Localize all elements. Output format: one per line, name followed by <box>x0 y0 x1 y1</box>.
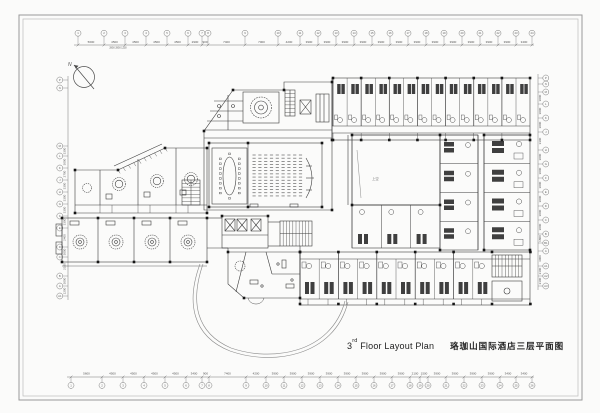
svg-text:B1: B1 <box>544 241 548 245</box>
svg-text:24: 24 <box>498 383 502 387</box>
svg-text:3900: 3900 <box>432 40 439 44</box>
svg-text:1500: 1500 <box>421 372 428 376</box>
svg-text:3300: 3300 <box>63 182 67 189</box>
svg-text:2400: 2400 <box>63 234 67 241</box>
svg-text:3900: 3900 <box>450 40 457 44</box>
svg-text:3900: 3900 <box>414 40 421 44</box>
svg-text:M: M <box>545 90 548 94</box>
svg-text:P: P <box>59 78 61 82</box>
svg-text:16: 16 <box>372 383 376 387</box>
svg-text:3900: 3900 <box>344 372 351 376</box>
atrium-void: 上空 <box>348 135 440 205</box>
svg-text:3300: 3300 <box>63 194 67 201</box>
svg-text:18: 18 <box>408 383 412 387</box>
svg-text:3900: 3900 <box>486 40 493 44</box>
svg-text:3300: 3300 <box>63 206 67 213</box>
svg-text:3000: 3000 <box>538 94 542 101</box>
svg-text:4: 4 <box>145 31 147 35</box>
svg-text:3000: 3000 <box>538 153 542 160</box>
svg-text:3000: 3000 <box>538 121 542 128</box>
generated-fixtures <box>61 77 532 306</box>
conference-block <box>204 82 332 210</box>
svg-text:5: 5 <box>164 383 166 387</box>
svg-text:8: 8 <box>207 31 209 35</box>
svg-text:22: 22 <box>496 31 500 35</box>
svg-text:4500: 4500 <box>153 40 160 44</box>
svg-text:3900: 3900 <box>468 40 475 44</box>
svg-text:2: 2 <box>103 31 105 35</box>
svg-text:3900: 3900 <box>342 40 349 44</box>
svg-text:A1: A1 <box>544 264 548 268</box>
svg-text:G: G <box>59 202 61 206</box>
atrium-label: 上空 <box>372 176 379 181</box>
svg-text:P: P <box>545 76 547 80</box>
svg-text:1: 1 <box>77 31 79 35</box>
svg-text:A3: A3 <box>544 284 548 288</box>
svg-text:A1: A1 <box>58 294 62 298</box>
svg-text:2850 2850 1250: 2850 2850 1250 <box>109 47 127 50</box>
svg-text:3300: 3300 <box>63 218 67 225</box>
svg-text:L: L <box>545 102 547 106</box>
svg-text:N: N <box>68 62 72 68</box>
svg-text:7: 7 <box>201 31 203 35</box>
svg-text:10: 10 <box>264 383 268 387</box>
svg-text:7000: 7000 <box>258 40 265 44</box>
svg-text:3400: 3400 <box>505 372 512 376</box>
svg-text:25: 25 <box>514 383 518 387</box>
svg-text:3000: 3000 <box>538 255 542 262</box>
svg-text:K: K <box>59 166 61 170</box>
svg-text:3: 3 <box>124 31 126 35</box>
svg-text:3900: 3900 <box>308 372 315 376</box>
svg-text:19: 19 <box>442 31 446 35</box>
title-block: 3rd Floor Layout Plan 珞珈山国际酒店三层平面图 <box>347 340 564 352</box>
svg-text:3000: 3000 <box>538 107 542 114</box>
svg-text:E: E <box>59 226 61 230</box>
svg-text:5600: 5600 <box>88 40 95 44</box>
title-english: 3rd Floor Layout Plan <box>347 341 434 351</box>
svg-text:19: 19 <box>418 383 422 387</box>
svg-text:24: 24 <box>530 31 534 35</box>
svg-text:H: H <box>545 148 547 152</box>
svg-text:3900: 3900 <box>290 372 297 376</box>
guest-wing-top <box>332 78 530 140</box>
north-arrow-icon: N <box>68 62 95 89</box>
svg-text:26: 26 <box>530 383 534 387</box>
svg-text:3900: 3900 <box>398 372 405 376</box>
svg-text:C: C <box>545 218 547 222</box>
svg-text:4200: 4200 <box>286 40 293 44</box>
svg-text:K: K <box>545 116 547 120</box>
svg-text:3300: 3300 <box>538 137 542 144</box>
svg-text:17: 17 <box>390 383 394 387</box>
svg-text:M: M <box>59 144 62 148</box>
building: 上空 <box>56 78 530 357</box>
driveway-arc <box>193 264 348 357</box>
svg-text:G: G <box>545 162 547 166</box>
svg-text:2: 2 <box>101 383 103 387</box>
svg-text:A2: A2 <box>544 274 548 278</box>
svg-text:H: H <box>59 190 61 194</box>
svg-text:A: A <box>545 249 547 253</box>
svg-text:3900: 3900 <box>272 372 279 376</box>
svg-text:3000: 3000 <box>63 158 67 165</box>
svg-text:21: 21 <box>478 31 482 35</box>
svg-text:3900: 3900 <box>360 40 367 44</box>
svg-text:17: 17 <box>406 31 410 35</box>
svg-text:6: 6 <box>187 31 189 35</box>
svg-text:5: 5 <box>166 31 168 35</box>
svg-text:4500: 4500 <box>174 40 181 44</box>
svg-text:3000: 3000 <box>538 209 542 216</box>
svg-text:3900: 3900 <box>488 372 495 376</box>
svg-text:900: 900 <box>203 372 208 376</box>
svg-text:2100: 2100 <box>412 372 419 376</box>
svg-text:7400: 7400 <box>224 372 231 376</box>
svg-text:3900: 3900 <box>378 40 385 44</box>
svg-text:L: L <box>59 154 61 158</box>
svg-text:7400: 7400 <box>223 40 230 44</box>
svg-text:3900: 3900 <box>504 40 511 44</box>
elevator-core <box>207 216 312 252</box>
svg-text:9: 9 <box>244 31 246 35</box>
svg-text:3000: 3000 <box>538 181 542 188</box>
svg-text:F: F <box>59 214 61 218</box>
svg-text:A: A <box>59 284 61 288</box>
svg-text:16: 16 <box>388 31 392 35</box>
svg-text:3900: 3900 <box>362 372 369 376</box>
svg-text:B: B <box>545 232 547 236</box>
svg-text:3400: 3400 <box>191 372 198 376</box>
svg-text:2100: 2100 <box>63 263 67 270</box>
svg-text:3900: 3900 <box>324 40 331 44</box>
svg-text:B: B <box>59 274 61 278</box>
svg-text:4500: 4500 <box>109 372 116 376</box>
svg-text:15: 15 <box>354 383 358 387</box>
svg-text:3000: 3000 <box>538 167 542 174</box>
svg-text:J: J <box>59 178 61 182</box>
svg-text:11: 11 <box>299 31 302 35</box>
svg-text:3000: 3000 <box>63 277 67 284</box>
drawing-sheet: 1560024500345004450054500629007900874009… <box>0 0 600 413</box>
svg-text:10: 10 <box>276 31 280 35</box>
svg-text:20: 20 <box>426 383 430 387</box>
svg-text:3300: 3300 <box>63 147 67 154</box>
svg-text:N: N <box>545 82 547 86</box>
svg-text:4: 4 <box>143 383 145 387</box>
svg-text:3000: 3000 <box>63 248 67 255</box>
svg-text:3900: 3900 <box>306 40 313 44</box>
svg-text:3000: 3000 <box>538 195 542 202</box>
svg-text:2700: 2700 <box>63 170 67 177</box>
svg-text:4200: 4200 <box>253 372 260 376</box>
svg-text:F: F <box>545 176 547 180</box>
conference-hall <box>209 143 322 207</box>
svg-text:22: 22 <box>462 383 466 387</box>
svg-text:E: E <box>545 190 547 194</box>
svg-text:4500: 4500 <box>172 372 179 376</box>
svg-text:D: D <box>545 204 547 208</box>
svg-text:21: 21 <box>444 383 448 387</box>
svg-text:900: 900 <box>202 40 207 44</box>
svg-text:4500: 4500 <box>111 40 118 44</box>
svg-text:8: 8 <box>208 383 210 387</box>
svg-text:23: 23 <box>480 383 484 387</box>
svg-text:2100: 2100 <box>538 267 542 274</box>
svg-text:N: N <box>59 86 61 90</box>
svg-text:3400: 3400 <box>521 372 528 376</box>
svg-text:3900: 3900 <box>434 372 441 376</box>
svg-text:4500: 4500 <box>132 40 139 44</box>
svg-text:13: 13 <box>318 383 322 387</box>
svg-text:7: 7 <box>201 383 203 387</box>
svg-text:9: 9 <box>245 383 247 387</box>
svg-text:18: 18 <box>424 31 428 35</box>
banquet-wing-upper <box>75 144 207 213</box>
svg-text:3: 3 <box>122 383 124 387</box>
svg-text:12: 12 <box>316 31 320 35</box>
svg-text:23: 23 <box>514 31 518 35</box>
dimension-grid: 1560024500345004450054500629007900874009… <box>57 30 549 388</box>
svg-text:3900: 3900 <box>452 372 459 376</box>
svg-text:D: D <box>59 245 61 249</box>
svg-text:3900: 3900 <box>470 372 477 376</box>
svg-text:5600: 5600 <box>83 372 90 376</box>
svg-text:2900: 2900 <box>192 40 199 44</box>
svg-text:4500: 4500 <box>151 372 158 376</box>
svg-text:3000: 3000 <box>538 223 542 230</box>
svg-text:3400: 3400 <box>521 40 528 44</box>
svg-text:3900: 3900 <box>380 372 387 376</box>
svg-text:1: 1 <box>70 383 72 387</box>
svg-text:C: C <box>59 255 61 259</box>
svg-text:14: 14 <box>352 31 356 35</box>
svg-text:3900: 3900 <box>326 372 333 376</box>
svg-text:4500: 4500 <box>130 372 137 376</box>
svg-text:12: 12 <box>300 383 304 387</box>
svg-text:14: 14 <box>336 383 340 387</box>
svg-text:J: J <box>545 130 547 134</box>
svg-text:6: 6 <box>185 383 187 387</box>
office-block <box>228 252 300 304</box>
title-chinese: 珞珈山国际酒店三层平面图 <box>450 340 564 352</box>
svg-text:2100: 2100 <box>538 277 542 284</box>
svg-text:3900: 3900 <box>396 40 403 44</box>
svg-text:13: 13 <box>334 31 338 35</box>
svg-text:20: 20 <box>460 31 464 35</box>
svg-text:11: 11 <box>283 383 286 387</box>
svg-text:15: 15 <box>370 31 374 35</box>
svg-text:1200: 1200 <box>63 287 67 294</box>
banquet-wing-lower <box>56 218 207 266</box>
svg-text:1800: 1800 <box>538 235 542 242</box>
